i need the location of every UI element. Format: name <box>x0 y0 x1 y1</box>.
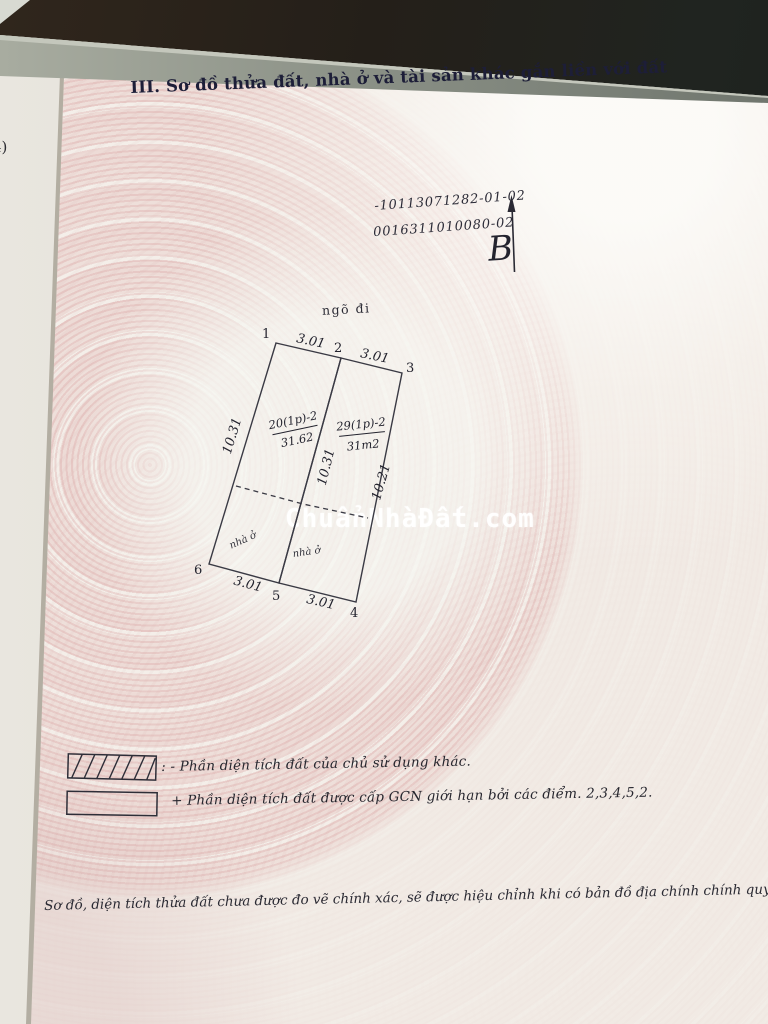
house-label-granted: nhà ở <box>292 545 322 560</box>
alley-label: ngõ đi <box>322 300 371 318</box>
certificate-photo: 4) III. Sơ đồ thửa đất, nhà ở và tài sản… <box>0 0 768 1024</box>
vertex-1: 1 <box>262 327 270 342</box>
other-owner-plot-label: 20(1p)-2 31.62 <box>266 408 322 452</box>
house-label-hatched: nhà ở <box>228 530 259 552</box>
granted-area: 31m2 <box>346 436 380 453</box>
plot-diagram-svg: B ngõ đi 1 2 3 4 5 6 3.01 3.01 3.01 3.01… <box>0 0 768 1024</box>
vertex-6: 6 <box>194 563 202 578</box>
edge-bottom-right: 3.01 <box>305 592 337 613</box>
edge-right-side: 10.21 <box>369 462 394 502</box>
edge-middle: 10.31 <box>315 447 339 487</box>
north-arrow-icon: B <box>486 195 516 272</box>
north-label: B <box>486 228 515 270</box>
legend-empty-box <box>67 791 157 816</box>
granted-parcel: 29(1p)-2 <box>335 415 387 434</box>
vertex-3: 3 <box>406 361 414 376</box>
legend-hatched-box <box>68 754 157 780</box>
vertex-2: 2 <box>334 341 342 356</box>
vertex-4: 4 <box>350 606 358 621</box>
vertex-5: 5 <box>272 589 280 604</box>
granted-plot-label: 29(1p)-2 31m2 <box>335 415 389 455</box>
certificate-content: 4) III. Sơ đồ thửa đất, nhà ở và tài sản… <box>0 0 768 1024</box>
edge-left-side: 10.31 <box>220 416 245 456</box>
